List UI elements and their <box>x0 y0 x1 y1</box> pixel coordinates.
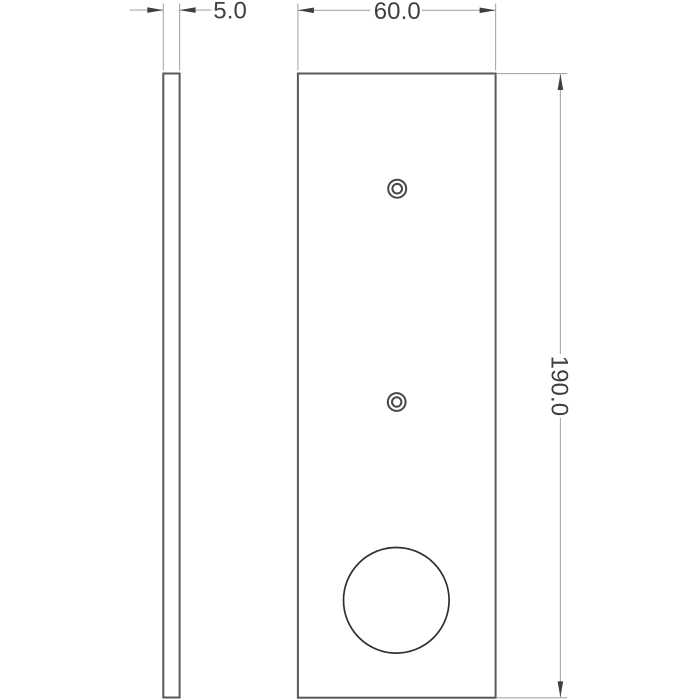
svg-text:60.0: 60.0 <box>374 0 421 25</box>
svg-text:190.0: 190.0 <box>545 356 572 417</box>
svg-text:5.0: 5.0 <box>213 0 247 25</box>
